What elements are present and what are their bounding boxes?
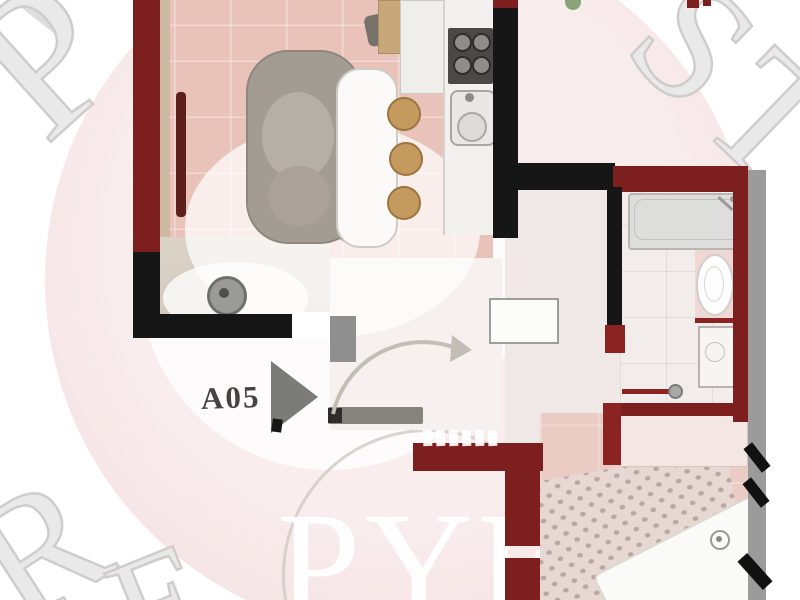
unit-label: A05 xyxy=(200,379,261,417)
door-swing-arc xyxy=(0,0,800,600)
floorplan-canvas: P ST R E PYE xyxy=(0,0,800,600)
entry-arrow-chip xyxy=(271,418,283,432)
